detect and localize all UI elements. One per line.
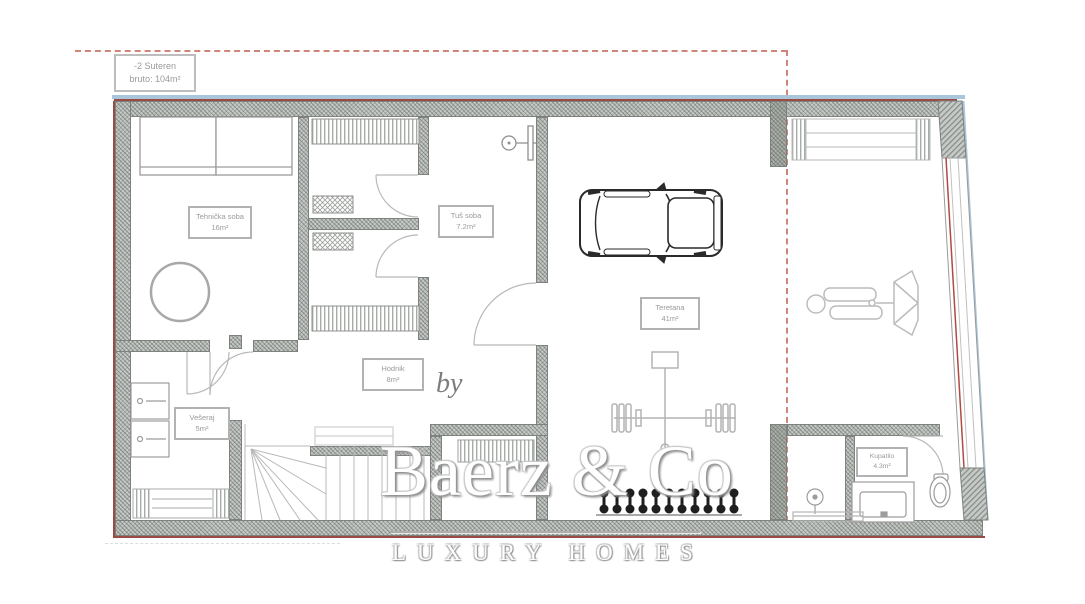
vanity-icon [852,482,914,522]
toilet-icon [930,474,950,507]
shelf-icon [315,427,393,445]
wall-laundry-stub [229,335,242,349]
plan-gross-area: bruto: 104m² [118,73,192,86]
room-label-tus-soba: Tuš soba 7.2m² [438,205,494,238]
wall-hall-top-b [253,340,298,352]
bench-icon [458,440,534,462]
hot-tub-icon [151,263,209,321]
car-icon [580,183,722,263]
room-name: Vešeraj [178,412,226,423]
wall-interior-3a [536,117,548,283]
room-area: 8m² [366,374,420,385]
room-area: 16m² [192,222,248,233]
wall-stairs-band [310,446,432,456]
room-area: 5m² [178,423,226,434]
stairs-icon [245,424,424,520]
wall-laundry-right [229,420,242,520]
wall-pier-top [770,101,787,167]
boundary-dashed-bottom [105,543,340,544]
boundary-dashed-top [75,50,787,52]
room-area: 4.3m² [860,462,904,472]
wall-storage-left [430,436,442,520]
wall-corridor-mid [308,218,419,230]
room-area: 7.2m² [442,221,490,232]
room-area: 41m² [644,313,696,324]
wall-hall-top-a [115,340,210,352]
watermark-tagline: LUXURY HOMES [392,540,704,566]
washer-icon [131,383,169,457]
treadmill-icon [807,271,918,335]
bench-icon [792,119,930,160]
room-name: Hodnik [366,363,420,374]
wall-bathroom-top [787,424,940,436]
plan-title-box: -2 Suteren bruto: 104m² [114,54,196,92]
wall-interior-2a [418,117,429,175]
wall-exterior-left [115,101,131,536]
wall-exterior-right-slanted [938,101,988,520]
outer-red-line-bottom [113,536,985,538]
room-name: Teretana [644,302,696,313]
shower-icon [502,126,536,160]
wall-bathroom-left [845,436,855,520]
room-label-tehnicka-soba: Tehnička soba 16m² [188,206,252,239]
dumbbell-rack-icon [596,489,742,516]
room-name: Tuš soba [442,210,490,221]
room-label-hodnik: Hodnik 8m² [362,358,424,391]
squat-rack-icon [612,352,736,452]
room-name: Tehnička soba [192,211,248,222]
watermark-by: by [436,368,462,400]
room-label-veseraj: Vešeraj 5m² [174,407,230,440]
bench-icon [133,489,229,518]
wall-exterior-bottom [115,520,983,536]
wall-interior-2b [418,277,429,340]
room-name: Kupatilo [860,452,904,462]
wall-pier-bottom [770,424,787,520]
room-label-kupatilo: Kupatilo 4.3m² [856,447,908,477]
plan-level: -2 Suteren [118,60,192,73]
cabinet-icon [140,117,292,175]
wall-storage-top [430,424,548,436]
wall-exterior-top [115,101,952,117]
floor-plan-canvas: -2 Suteren bruto: 104m² Tehnička soba 16… [0,0,1085,604]
room-label-teretana: Teretana 41m² [640,297,700,330]
